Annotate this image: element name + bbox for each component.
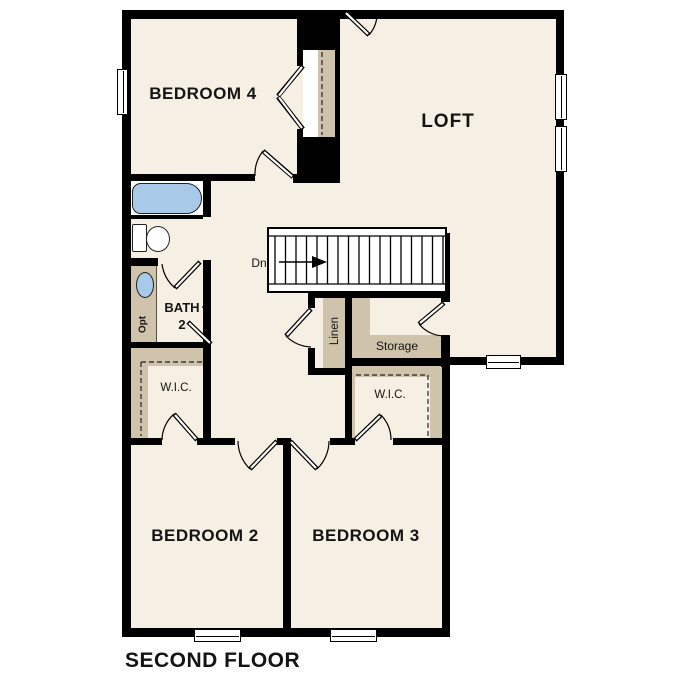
window-bedroom3-bottom (330, 629, 377, 642)
second-floor-plan: BEDROOM 4 LOFT BATH 2 Dn Linen Storage W… (0, 0, 687, 687)
toilet-bowl-icon (146, 226, 170, 252)
window-bedroom4-left (117, 69, 128, 115)
label-bedroom2: BEDROOM 2 (135, 526, 275, 546)
window-pane-line (196, 636, 239, 637)
wall-bedrooms-top-2 (197, 438, 235, 445)
label-vanity-opt: Opt (138, 300, 151, 350)
wall-storage-bottom (345, 358, 450, 366)
window-pane-line (332, 636, 375, 637)
window-bedroom2-bottom (194, 629, 241, 642)
label-bath-line2: 2 (160, 317, 204, 332)
wall-bath-door-stub (125, 258, 158, 266)
label-bath-line1: BATH (160, 300, 204, 315)
wall-bedroom4-bottom (124, 174, 255, 181)
sink-icon (136, 272, 154, 298)
label-bedroom3: BEDROOM 3 (296, 526, 436, 546)
label-bedroom4: BEDROOM 4 (133, 84, 273, 104)
label-storage: Storage (362, 339, 432, 353)
bathtub-icon (132, 183, 202, 214)
window-pane-line (123, 71, 124, 113)
window-loft-right-1 (555, 74, 567, 120)
bedroom4-closet-floor (303, 50, 318, 137)
wall-bath-right-lower (203, 260, 211, 445)
window-loft-right-2 (555, 126, 567, 172)
window-pane-line (561, 128, 562, 170)
bedroom4-closet-shelf (318, 50, 335, 137)
wall-bedrooms-top-5 (393, 438, 450, 445)
wall-bedroom3-right (442, 357, 450, 637)
window-pane-line (561, 76, 562, 118)
wall-chase-right (335, 50, 340, 137)
wall-bedrooms-top-1 (124, 438, 162, 445)
plan-title: SECOND FLOOR (125, 649, 385, 673)
label-linen: Linen (329, 301, 343, 361)
window-pane-line (488, 362, 519, 363)
window-loft-bottom (486, 355, 521, 369)
wall-chase-bottom (303, 137, 340, 183)
wall-exterior-top (124, 10, 564, 19)
storage-floor (370, 298, 442, 335)
wall-linen-bottom (308, 368, 352, 375)
staircase (267, 227, 447, 293)
wall-bedroom-divider (283, 438, 291, 637)
wall-bath-right-upper (203, 180, 211, 217)
wall-loft-right (556, 10, 564, 365)
wall-chase-top (303, 19, 340, 50)
toilet-tank-icon (132, 224, 147, 252)
wall-tub-ledge (129, 215, 203, 219)
wic-left-floor (148, 366, 207, 438)
label-wic-left: W.I.C. (146, 382, 206, 394)
wic-right-floor (355, 377, 430, 438)
label-loft: LOFT (398, 111, 498, 133)
label-stairs-dn: Dn (246, 256, 272, 270)
label-wic-right: W.I.C. (360, 389, 420, 401)
